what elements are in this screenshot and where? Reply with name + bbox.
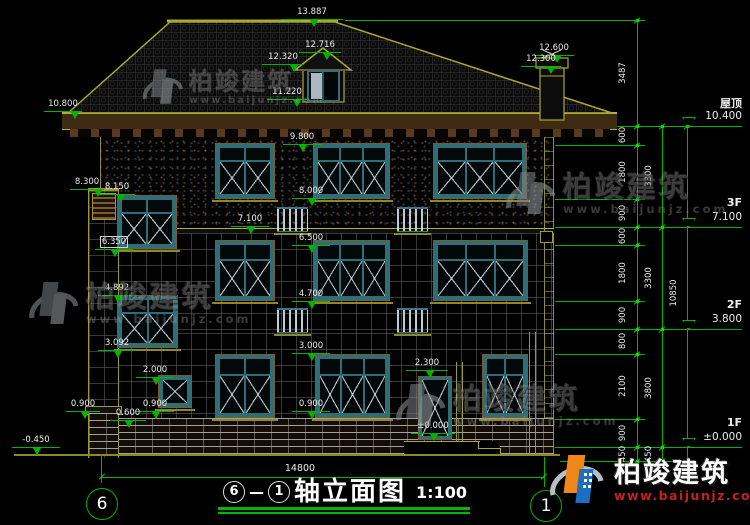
window-pane bbox=[466, 161, 495, 195]
window-pane bbox=[219, 161, 245, 195]
window-pane bbox=[148, 313, 175, 345]
window-pane bbox=[121, 299, 148, 313]
elevation-mark-triangle bbox=[114, 296, 122, 303]
extension-line bbox=[555, 245, 645, 246]
elevation-mark-triangle bbox=[117, 195, 125, 202]
dim-label: 3300 bbox=[644, 165, 654, 187]
dim-label: 900 bbox=[618, 425, 628, 441]
extension-line bbox=[555, 301, 645, 302]
window-frame bbox=[434, 144, 526, 198]
window-pane bbox=[319, 358, 341, 375]
elevation-mark-value: 0.900 bbox=[292, 399, 330, 410]
extension-line bbox=[555, 419, 645, 420]
elevation-mark: 3.000 bbox=[292, 341, 330, 352]
elevation-mark: 3.092 bbox=[98, 338, 136, 349]
balcony-railing bbox=[277, 207, 308, 232]
eave-fascia bbox=[62, 112, 617, 130]
window-pane bbox=[340, 244, 363, 260]
elevation-mark-value: 2.300 bbox=[406, 358, 448, 369]
entry-steps bbox=[404, 441, 514, 455]
elevation-mark: 13.887 bbox=[281, 7, 343, 18]
watermark-logo-icon bbox=[140, 66, 184, 109]
window-pane bbox=[219, 260, 245, 297]
window-transom-row bbox=[219, 358, 271, 375]
dim-label: 3487 bbox=[618, 62, 628, 84]
elevation-mark-value: ±0.000 bbox=[411, 421, 455, 432]
dim-label: 900 bbox=[618, 307, 628, 323]
dim-label: 600 bbox=[618, 127, 628, 143]
dimension-chain-line bbox=[637, 20, 638, 461]
window-transom-row bbox=[486, 358, 524, 375]
window-pane bbox=[317, 244, 340, 260]
title-separator: — bbox=[249, 483, 264, 501]
dim-label: 2100 bbox=[618, 375, 628, 397]
elevation-mark: ±0.000 bbox=[411, 421, 455, 432]
elevation-mark-value: 0.900 bbox=[66, 399, 100, 410]
drawing-scale: 1:100 bbox=[416, 483, 467, 502]
window-pane bbox=[466, 244, 495, 260]
window-pane bbox=[505, 375, 524, 414]
window-pane bbox=[486, 358, 505, 375]
window-pane bbox=[466, 147, 495, 161]
window-casement-row bbox=[486, 375, 524, 414]
elevation-mark-value: 12.300 bbox=[521, 54, 561, 65]
window-frame bbox=[216, 241, 274, 300]
elevation-mark-triangle bbox=[308, 302, 316, 309]
dim-label: 900 bbox=[618, 205, 628, 221]
elevation-drawing: 3487600180090060018009008002100900450330… bbox=[0, 0, 750, 525]
window-frame bbox=[216, 144, 274, 198]
elevation-mark: 12.300 bbox=[521, 54, 561, 65]
window-pane bbox=[340, 147, 363, 161]
dim-grip bbox=[636, 19, 639, 22]
elevation-mark: 2.000 bbox=[136, 365, 174, 376]
elevation-mark: 6.350 bbox=[95, 237, 133, 248]
elevation-mark-value: 6.500 bbox=[292, 233, 330, 244]
window-pane bbox=[494, 147, 523, 161]
elevation-mark-triangle bbox=[152, 378, 160, 385]
elevation-mark: 0.900 bbox=[66, 399, 100, 410]
dim-grip bbox=[636, 244, 639, 247]
balcony-railing bbox=[397, 207, 428, 232]
elevation-mark: 0.900 bbox=[292, 399, 330, 410]
elevation-mark: 4.892 bbox=[98, 283, 136, 294]
elevation-mark-value: 2.000 bbox=[136, 365, 174, 376]
elevation-mark-triangle bbox=[308, 412, 316, 419]
window-transom-row bbox=[319, 358, 386, 375]
window-frame bbox=[216, 355, 274, 417]
window-pane bbox=[317, 147, 340, 161]
window-transom-row bbox=[317, 147, 386, 161]
elevation-mark-value: 0.600 bbox=[110, 408, 146, 419]
window-pane bbox=[364, 358, 386, 375]
elevation-mark-value: 12.320 bbox=[262, 52, 304, 63]
dim-label: 3800 bbox=[644, 377, 654, 399]
window-pane bbox=[495, 260, 524, 297]
elevation-mark: 0.600 bbox=[110, 408, 146, 419]
level-name: 2F bbox=[692, 298, 742, 311]
window-pane bbox=[363, 260, 386, 297]
elevation-mark: 8.150 bbox=[99, 182, 135, 193]
window-pane bbox=[437, 147, 466, 161]
elevation-mark-value: 3.000 bbox=[292, 341, 330, 352]
level-name: 1F bbox=[692, 416, 742, 429]
elevation-mark-value: 12.716 bbox=[299, 40, 341, 51]
elevation-mark-value: 4.700 bbox=[292, 289, 330, 300]
elevation-mark-triangle bbox=[293, 100, 301, 107]
elevation-mark-triangle bbox=[81, 412, 89, 419]
elevation-mark-value: 8.000 bbox=[292, 186, 330, 197]
window-casement-row bbox=[437, 260, 524, 297]
window-pane bbox=[147, 199, 173, 213]
level-value: ±0.000 bbox=[692, 431, 742, 443]
dim-label: 600 bbox=[618, 228, 628, 244]
elevation-mark-triangle bbox=[547, 67, 555, 74]
brand-logo: 柏竣建筑 www.baijunjz.com bbox=[545, 449, 750, 513]
elevation-mark: -0.450 bbox=[12, 435, 60, 446]
balcony-railing bbox=[277, 308, 308, 333]
elevation-mark-triangle bbox=[426, 371, 434, 378]
elevation-mark-line bbox=[299, 52, 341, 53]
level-value: 7.100 bbox=[692, 211, 742, 223]
window bbox=[433, 143, 527, 199]
window bbox=[215, 354, 275, 418]
elevation-mark-value: 12.600 bbox=[534, 43, 574, 54]
elevation-mark-triangle bbox=[111, 250, 119, 257]
window-pane bbox=[437, 260, 466, 297]
wall-vent bbox=[540, 231, 553, 243]
dim-grip bbox=[636, 226, 639, 229]
window-pane bbox=[340, 161, 363, 195]
dim-grip bbox=[661, 226, 664, 229]
window-transom-row bbox=[121, 199, 173, 213]
window bbox=[482, 354, 528, 418]
elevation-mark-triangle bbox=[152, 412, 160, 419]
ground-line bbox=[14, 454, 560, 456]
balcony-railing bbox=[397, 308, 428, 333]
window-transom-row bbox=[437, 147, 523, 161]
elevation-mark-value: -0.450 bbox=[12, 435, 60, 446]
level-name: 3F bbox=[692, 196, 742, 209]
dimension-chain-line bbox=[687, 126, 688, 461]
elevation-mark-triangle bbox=[114, 351, 122, 358]
window-pane bbox=[245, 260, 271, 297]
dim-label: 1800 bbox=[618, 161, 628, 183]
window-transom-row bbox=[437, 244, 524, 260]
window bbox=[215, 143, 275, 199]
elevation-mark: 7.100 bbox=[231, 214, 269, 225]
dim-grip bbox=[636, 353, 639, 356]
dimension-chain-line bbox=[662, 126, 663, 461]
dim-label: 800 bbox=[618, 333, 628, 349]
brand-logo-url: www.baijunjz.com bbox=[614, 488, 750, 503]
corner-quoin-right bbox=[544, 137, 554, 418]
level-value: 3.800 bbox=[692, 313, 742, 325]
window-transom-row bbox=[317, 244, 386, 260]
elevation-mark-triangle bbox=[33, 448, 41, 455]
window bbox=[215, 240, 275, 301]
downspout-2 bbox=[529, 332, 536, 455]
window-pane bbox=[437, 161, 466, 195]
window-transom-row bbox=[219, 244, 271, 260]
window-transom-row bbox=[219, 147, 271, 161]
window-pane bbox=[148, 299, 175, 313]
elevation-mark-triangle bbox=[308, 199, 316, 206]
dim-grip bbox=[636, 198, 639, 201]
window-frame bbox=[483, 355, 527, 417]
dim-grip bbox=[636, 328, 639, 331]
window bbox=[433, 240, 528, 301]
elevation-mark-triangle bbox=[299, 145, 307, 152]
window-pane bbox=[494, 161, 523, 195]
elevation-mark-triangle bbox=[247, 227, 255, 234]
elevation-mark-value: 4.892 bbox=[98, 283, 136, 294]
elevation-mark-triangle bbox=[310, 20, 318, 27]
window-pane bbox=[363, 147, 386, 161]
elevation-mark-value: 3.092 bbox=[98, 338, 136, 349]
elevation-mark-triangle bbox=[323, 53, 331, 60]
downspout-1 bbox=[456, 362, 463, 442]
window-pane bbox=[245, 161, 271, 195]
title-underline-2 bbox=[218, 512, 470, 514]
elevation-mark-triangle bbox=[430, 434, 438, 441]
dim-grip bbox=[661, 125, 664, 128]
window-pane bbox=[245, 244, 271, 260]
window-pane bbox=[340, 260, 363, 297]
dim-grip bbox=[636, 144, 639, 147]
window-pane bbox=[219, 244, 245, 260]
elevation-mark: 11.220 bbox=[267, 87, 307, 98]
elevation-mark-triangle bbox=[290, 65, 298, 72]
elevation-mark: 4.700 bbox=[292, 289, 330, 300]
elevation-mark-triangle bbox=[308, 246, 316, 253]
dim-grip bbox=[636, 418, 639, 421]
window-pane bbox=[219, 358, 245, 375]
eave-dentils bbox=[70, 129, 610, 137]
bottom-ext-left bbox=[101, 455, 102, 483]
elevation-mark: 9.800 bbox=[283, 132, 321, 143]
elevation-mark: 12.716 bbox=[299, 40, 341, 51]
elevation-mark-value: 6.350 bbox=[95, 237, 133, 248]
elevation-mark-triangle bbox=[308, 354, 316, 361]
dim-label: 3300 bbox=[644, 267, 654, 289]
window-pane bbox=[466, 260, 495, 297]
window-frame bbox=[434, 241, 527, 300]
title-bar: 6 — 1 轴立面图 1:100 bbox=[205, 478, 485, 506]
window-pane bbox=[364, 375, 386, 414]
elevation-mark: 8.000 bbox=[292, 186, 330, 197]
dim-grip bbox=[661, 328, 664, 331]
window-casement-row bbox=[219, 260, 271, 297]
brand-logo-icon bbox=[545, 449, 607, 513]
window-pane bbox=[147, 213, 173, 245]
dim-grip bbox=[636, 300, 639, 303]
elevation-mark: 6.500 bbox=[292, 233, 330, 244]
pier-louver bbox=[92, 193, 116, 220]
dim-label: 1800 bbox=[618, 262, 628, 284]
elevation-mark-value: 9.800 bbox=[283, 132, 321, 143]
title-axis-start: 6 bbox=[223, 481, 245, 503]
elevation-mark-value: 7.100 bbox=[231, 214, 269, 225]
window-pane bbox=[363, 161, 386, 195]
overall-width-dimension: 14800 bbox=[255, 463, 345, 474]
main-roof bbox=[68, 22, 612, 113]
drawing-title: 轴立面图 bbox=[294, 478, 406, 506]
window-pane bbox=[437, 244, 466, 260]
window-casement-row bbox=[437, 161, 523, 195]
window-pane bbox=[219, 375, 245, 414]
window-transom-row bbox=[121, 299, 174, 313]
extension-line bbox=[555, 199, 645, 200]
window-pane bbox=[341, 358, 363, 375]
dim-grip bbox=[636, 125, 639, 128]
elevation-mark-value: 10.800 bbox=[44, 99, 82, 110]
window-pane bbox=[486, 375, 505, 414]
level-value: 10.400 bbox=[692, 110, 742, 122]
elevation-mark-triangle bbox=[71, 112, 79, 119]
window-pane bbox=[245, 147, 271, 161]
extension-line bbox=[555, 354, 645, 355]
window-casement-row bbox=[219, 161, 271, 195]
elevation-mark-triangle bbox=[125, 421, 133, 428]
window-pane bbox=[505, 358, 524, 375]
brand-logo-text: 柏竣建筑 bbox=[614, 460, 750, 488]
window-pane bbox=[363, 244, 386, 260]
title-underline-1 bbox=[218, 507, 470, 510]
elevation-mark-value: 11.220 bbox=[267, 87, 307, 98]
dim-label: 10850 bbox=[669, 279, 679, 306]
axis-bubble-6: 6 bbox=[86, 488, 118, 520]
window-pane bbox=[495, 244, 524, 260]
window-pane bbox=[245, 358, 271, 375]
window-pane bbox=[219, 147, 245, 161]
extension-line bbox=[345, 20, 645, 21]
elevation-mark: 10.800 bbox=[44, 99, 82, 110]
elevation-mark-value: 8.150 bbox=[99, 182, 135, 193]
window-pane bbox=[245, 375, 271, 414]
title-axis-end: 1 bbox=[268, 481, 290, 503]
elevation-mark-value: 13.887 bbox=[281, 7, 343, 18]
watermark-logo-icon bbox=[26, 278, 80, 330]
elevation-mark: 12.600 bbox=[534, 43, 574, 54]
extension-line bbox=[555, 145, 645, 146]
window-pane bbox=[341, 375, 363, 414]
elevation-mark: 2.300 bbox=[406, 358, 448, 369]
level-name: 屋顶 bbox=[692, 95, 742, 111]
elevation-mark: 12.320 bbox=[262, 52, 304, 63]
axis-bubble-6-label: 6 bbox=[97, 494, 108, 514]
window-casement-row bbox=[219, 375, 271, 414]
